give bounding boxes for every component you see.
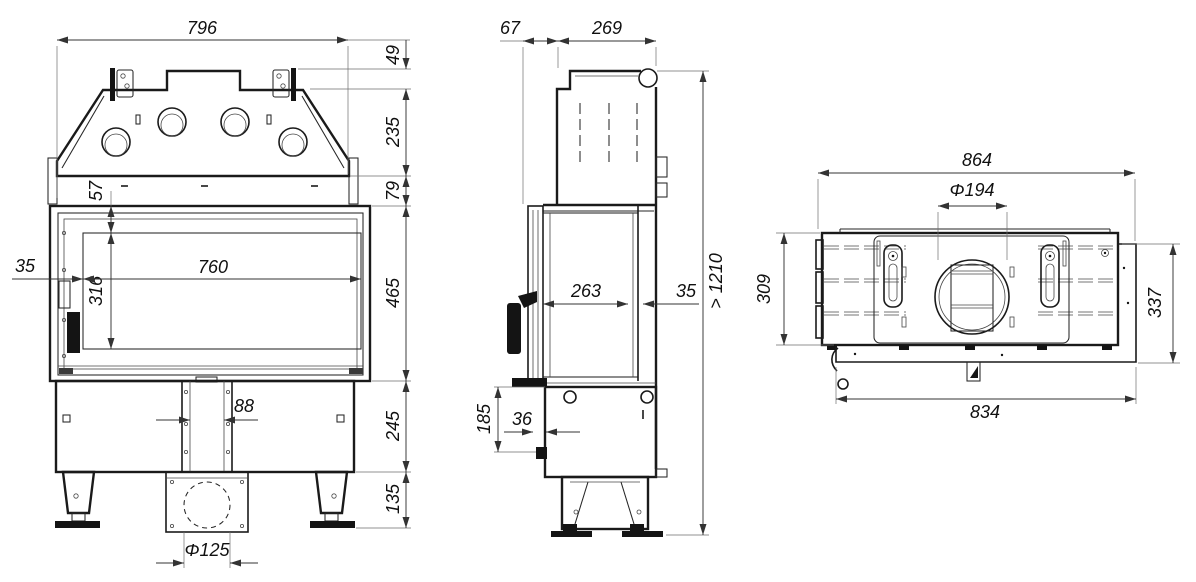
dim-front-hood-gap: 79 — [383, 181, 403, 201]
left-bracket-bar — [110, 68, 115, 101]
left-leg — [63, 472, 94, 513]
dim-top-overall-depth: 337 — [1145, 287, 1165, 318]
door-glass — [83, 233, 361, 349]
dim-side-rear-inset: 35 — [676, 281, 697, 301]
dim-front-hood-height: 235 — [383, 116, 403, 148]
side-front-step — [536, 447, 547, 459]
base-box — [56, 381, 354, 472]
top-body — [822, 233, 1118, 345]
side-front-foot-pad — [551, 531, 592, 537]
top-vent-slot-right — [1041, 245, 1059, 307]
dim-front-glass-width: 760 — [198, 257, 228, 277]
right-bracket-bar — [291, 68, 296, 101]
dim-front-feet-height: 135 — [383, 483, 403, 514]
left-foot-pad — [55, 521, 100, 528]
door-latch — [59, 281, 70, 308]
side-baffle-lines — [580, 103, 637, 165]
hood-outline — [57, 71, 349, 176]
dim-side-base-rear-height: 185 — [474, 403, 494, 434]
hood-air-outlets — [102, 108, 307, 156]
dim-front-left-inset: 35 — [15, 256, 36, 276]
front-view: 796 49 235 79 465 245 135 57 316 760 35 … — [12, 18, 411, 568]
left-bracket-plate — [117, 70, 133, 97]
top-handle-hook — [832, 348, 838, 371]
dim-side-top-depth: 269 — [591, 18, 622, 38]
dim-front-glass-height: 316 — [86, 275, 106, 306]
dim-side-front-step-depth: 36 — [512, 409, 533, 429]
dim-front-door-height: 465 — [383, 277, 403, 308]
duct-bolts — [184, 390, 229, 453]
top-flue — [935, 260, 1009, 334]
side-sill — [512, 378, 547, 387]
hood-right-ear — [349, 158, 358, 204]
right-bracket-plate — [273, 70, 289, 97]
side-top-outline — [557, 71, 641, 205]
side-view: 67 269 263 35 185 36 > 1210 — [474, 18, 726, 537]
hood-left-ear — [48, 158, 57, 204]
dim-front-base-height: 245 — [383, 410, 403, 442]
right-foot-pad — [310, 521, 355, 528]
side-top-collar — [639, 69, 657, 87]
dim-front-air-inlet-diameter: Φ125 — [184, 540, 230, 560]
dim-front-glass-top-inset: 57 — [86, 180, 106, 201]
right-leg — [316, 472, 347, 513]
side-rear-foot-pad — [622, 531, 663, 537]
side-pedestal — [562, 477, 648, 529]
dim-side-min-total-height: > 1210 — [706, 253, 726, 309]
top-center-bracket — [967, 362, 980, 381]
dim-side-front-offset: 67 — [500, 18, 521, 38]
dim-top-flue-diameter: Φ194 — [949, 180, 994, 200]
dim-top-frame-width: 834 — [970, 402, 1000, 422]
dim-top-overall-width: 864 — [962, 150, 992, 170]
dim-front-overall-width: 796 — [187, 18, 218, 38]
technical-drawing-canvas: 796 49 235 79 465 245 135 57 316 760 35 … — [0, 0, 1196, 582]
dim-front-duct-width: 88 — [234, 396, 254, 416]
dim-top-body-depth: 309 — [754, 274, 774, 304]
dim-side-firebox-depth: 263 — [570, 281, 601, 301]
top-view: 864 Φ194 309 337 834 — [754, 150, 1180, 422]
dim-front-top-flange-height: 49 — [383, 45, 403, 65]
air-inlet-circle — [184, 482, 230, 528]
top-vent-slot-left — [884, 245, 902, 307]
side-handle — [507, 303, 521, 354]
air-inlet-box — [166, 472, 248, 532]
door-handle — [67, 312, 80, 353]
drawing-svg: 796 49 235 79 465 245 135 57 316 760 35 … — [0, 0, 1196, 582]
